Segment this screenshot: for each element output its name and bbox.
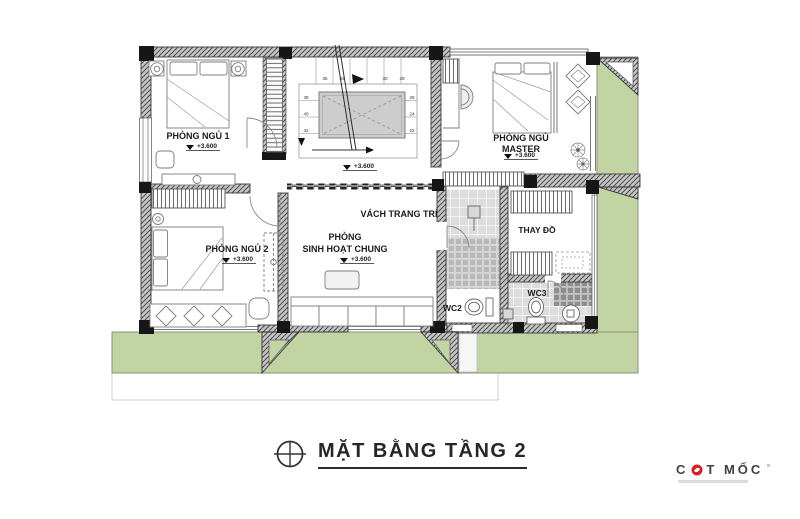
svg-text:+3.600: +3.600 [351,256,371,263]
bedroom1-label: PHÒNG NGỦ 1 [166,130,229,141]
wc2-label: WC2 [443,303,462,313]
svg-text:+3.600: +3.600 [233,256,253,263]
staircase: 36 34 30 28 38 40 42 26 24 22 [267,45,418,158]
svg-text:22: 22 [409,128,415,133]
svg-text:+3.600: +3.600 [197,143,217,150]
stair-level: +3.600 [343,163,377,171]
stair-direction-arrows [298,138,374,154]
living-label-line2: SINH HOẠT CHUNG [303,244,388,254]
logo-tagline [678,480,748,483]
svg-text:28: 28 [399,76,405,81]
logo-text-suffix: T MỐC [706,462,763,477]
decor-wall-label: VÁCH TRANG TRÍ [361,209,438,219]
drawing-title-block: MẶT BẰNG TẦNG 2 [274,438,527,470]
master-furniture [443,59,590,133]
bedroom1-level: +3.600 [186,143,220,151]
bedroom1-furniture [149,60,246,185]
svg-text:42: 42 [303,128,309,133]
svg-text:34: 34 [339,76,345,81]
dressing-label: THAY ĐỒ [518,224,556,235]
page-title: MẶT BẰNG TẦNG 2 [318,440,527,469]
svg-text:36: 36 [322,76,328,81]
svg-text:+3.600: +3.600 [515,152,535,159]
company-logo: C T MỐC [676,462,770,483]
stair-void [319,92,405,138]
floor-plan-page: 36 34 30 28 38 40 42 26 24 22 [0,0,800,519]
svg-text:38: 38 [303,95,309,100]
living-level: +3.600 [340,256,374,264]
svg-text:24: 24 [409,112,415,117]
living-furniture [291,271,433,326]
section-marker-icon [274,438,306,470]
logo-registered-mark [767,464,770,467]
wc3-label: WC3 [528,288,547,298]
logo-text-prefix: C [676,462,688,477]
logo-icon [691,464,703,476]
svg-text:26: 26 [409,95,415,100]
garden-right [597,57,638,372]
svg-text:40: 40 [303,112,309,117]
bedroom2-furniture [150,189,283,327]
svg-text:+3.600: +3.600 [354,163,374,170]
bedroom2-level: +3.600 [222,256,256,264]
master-closet-band [443,172,524,186]
master-label-line1: PHÒNG NGỦ [493,132,549,143]
wc2-floor [446,189,500,289]
bedroom2-label: PHÒNG NGỦ 2 [205,243,268,254]
garden-bottom [112,332,638,373]
living-label-line1: PHÒNG [328,231,361,242]
decor-partition [287,184,433,190]
balcony-plants [571,143,589,170]
svg-text:30: 30 [382,76,388,81]
